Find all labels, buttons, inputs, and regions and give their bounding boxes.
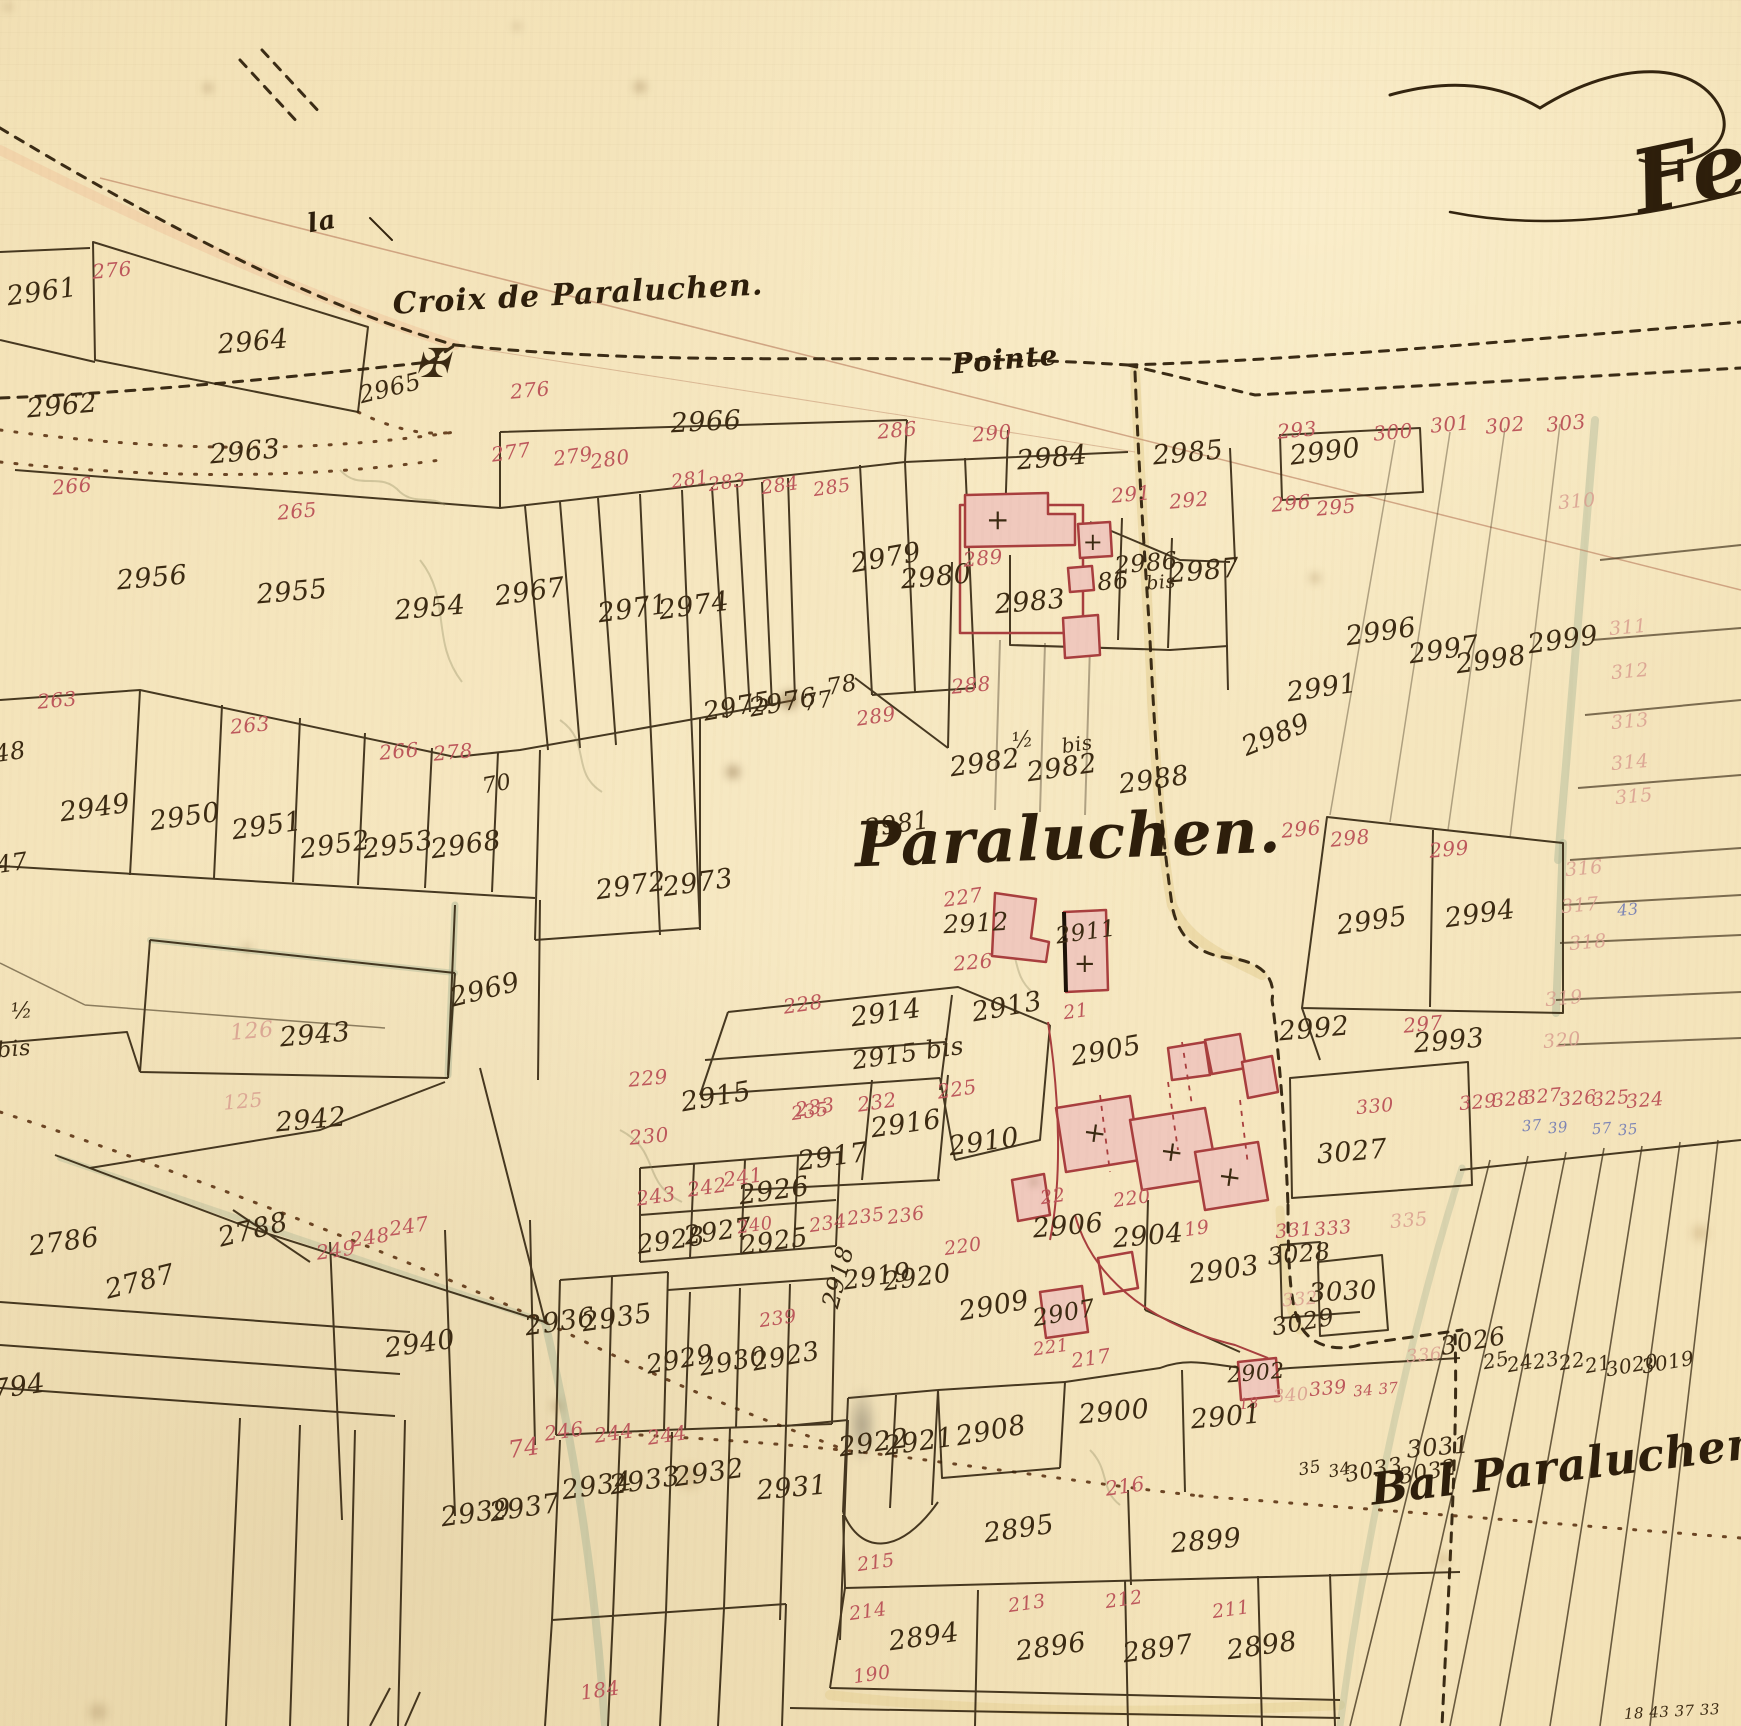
parcel-label-2985: 2985 (1152, 436, 1225, 469)
parcel-label-303: 303 (1545, 411, 1586, 434)
parcel-label-: + (1083, 530, 1104, 554)
parcel-label-315: 315 (1614, 786, 1653, 808)
parcel-label-276: 276 (91, 258, 132, 281)
parcel-label-299: 299 (1428, 837, 1469, 860)
parcel-label-313: 313 (1610, 711, 1649, 733)
parcel-label-317: 317 (1560, 895, 1599, 917)
parcel-label-314: 314 (1610, 752, 1649, 774)
parcel-label-2983: 2983 (994, 585, 1067, 618)
parcel-label-241: 241 (722, 1164, 764, 1189)
parcel-label-35: 35 (1617, 1122, 1638, 1139)
parcel-label-318: 318 (1568, 932, 1607, 954)
parcel-label-2987: 2987 (1168, 554, 1241, 587)
parcel-label-283: 283 (707, 471, 747, 495)
parcel-label-184: 184 (579, 1677, 621, 1702)
parcel-label-230: 230 (628, 1124, 669, 1147)
parcel-label-22: 22 (1039, 1186, 1067, 1208)
parcel-label-22: 22 (1557, 1349, 1587, 1373)
parcel-label-289: 289 (962, 546, 1003, 569)
parcel-label-: ½ (1011, 729, 1036, 754)
parcel-label-2962: 2962 (26, 389, 99, 422)
parcel-label-290: 290 (971, 421, 1012, 444)
parcel-label-239: 239 (758, 1307, 798, 1331)
parcel-label-226: 226 (952, 950, 993, 973)
parcel-label-2963: 2963 (209, 435, 282, 468)
parcel-label-220: 220 (943, 1235, 983, 1259)
parcel-label-: + (986, 506, 1010, 534)
parcel-label-242: 242 (686, 1174, 728, 1199)
parcel-label-244: 244 (646, 1422, 688, 1447)
parcel-label-279: 279 (552, 443, 594, 468)
parcel-label-217: 217 (1070, 1345, 1112, 1370)
parcel-label-37: 37 (1521, 1118, 1542, 1135)
parcel-label-284: 284 (760, 474, 800, 498)
parcel-label-2912: 2912 (943, 909, 1010, 937)
parcel-label-2992: 2992 (1278, 1012, 1351, 1045)
parcel-label-2942: 2942 (275, 1103, 348, 1136)
parcel-label-bis: bis (0, 1038, 32, 1063)
parcel-label-2904: 2904 (1112, 1219, 1185, 1252)
parcel-label-bis: bis (1060, 732, 1093, 756)
parcel-label-125: 125 (222, 1089, 263, 1112)
parcel-label-228: 228 (782, 991, 824, 1016)
parcel-label-2943: 2943 (279, 1018, 352, 1051)
parcel-label-34-37: 34 37 (1353, 1381, 1400, 1400)
parcel-label-2900: 2900 (1078, 1395, 1151, 1428)
parcel-label-229: 229 (627, 1066, 668, 1089)
parcel-label-3027: 3027 (1316, 1135, 1389, 1168)
parcel-label-2956: 2956 (116, 561, 189, 594)
parcel-label-310: 310 (1557, 491, 1596, 513)
parcel-label-216: 216 (1104, 1473, 1146, 1498)
parcel-label-266: 266 (51, 474, 92, 497)
parcel-label-295: 295 (1315, 495, 1356, 518)
parcel-label-221: 221 (1032, 1337, 1070, 1360)
parcel-label-3030: 3030 (1308, 1277, 1377, 1307)
parcel-label-277: 277 (490, 439, 532, 464)
parcel-label-: + (1158, 1136, 1186, 1167)
parcel-label-19: 19 (1183, 1218, 1211, 1240)
parcel-label-302: 302 (1484, 413, 1525, 436)
parcel-label-276: 276 (509, 378, 550, 401)
parcel-label-47: 47 (0, 849, 29, 877)
parcel-label-2906: 2906 (1032, 1209, 1105, 1242)
parcel-label-215: 215 (856, 1551, 896, 1575)
parcel-label-266: 266 (378, 739, 419, 762)
parcel-label-2931: 2931 (756, 1471, 829, 1504)
parcel-label-340: 340 (1272, 1385, 1309, 1406)
place-label-paraluchen: Paraluchen. (854, 800, 1282, 877)
parcel-label-265: 265 (276, 499, 317, 522)
parcel-label-48: 48 (0, 738, 27, 766)
parcel-label-3028: 3028 (1267, 1239, 1332, 1268)
parcel-label-: ½ (10, 1000, 34, 1024)
parcel-label-35: 35 (1297, 1459, 1322, 1480)
place-label-la: la (306, 207, 339, 238)
parcel-label-2993: 2993 (1413, 1024, 1486, 1057)
parcel-label-214: 214 (848, 1600, 888, 1624)
parcel-label-285: 285 (812, 476, 852, 500)
parcel-label-227: 227 (942, 884, 984, 909)
cadastral-map: laCroix de Paraluchen.PointeFe2961276296… (0, 0, 1741, 1726)
parcel-label-24: 24 (1505, 1351, 1535, 1375)
parcel-label-212: 212 (1104, 1588, 1144, 1612)
parcel-label-292: 292 (1168, 488, 1209, 511)
parcel-label-286: 286 (876, 418, 917, 441)
parcel-label-247: 247 (388, 1213, 430, 1238)
parcel-label-234: 234 (808, 1212, 848, 1236)
parcel-label-243: 243 (635, 1183, 677, 1208)
parcel-label-327: 327 (1523, 1086, 1562, 1108)
parcel-label-263: 263 (36, 688, 77, 711)
parcel-label-316: 316 (1564, 858, 1603, 880)
parcel-label-324: 324 (1625, 1090, 1664, 1112)
parcel-label-311: 311 (1608, 617, 1647, 639)
parcel-label-248: 248 (349, 1224, 391, 1249)
parcel-label-335: 335 (1389, 1210, 1428, 1232)
parcel-label-246: 246 (543, 1418, 585, 1443)
parcel-label-57: 57 (1591, 1121, 1612, 1138)
parcel-label-2980: 2980 (900, 560, 973, 593)
parcel-label-235: 235 (846, 1205, 886, 1229)
parcel-label-319: 319 (1544, 988, 1583, 1010)
parcel-label-288: 288 (950, 673, 991, 696)
parcel-label-2966: 2966 (670, 407, 742, 438)
parcel-label-211: 211 (1211, 1598, 1251, 1622)
parcel-label-296: 296 (1270, 491, 1311, 514)
parcel-label-301: 301 (1429, 412, 1470, 435)
parcel-label-289: 289 (855, 703, 897, 728)
parcel-label-244: 244 (593, 1420, 635, 1445)
parcel-label-225: 225 (936, 1076, 978, 1101)
parcel-label-213: 213 (1007, 1592, 1047, 1616)
parcel-label-2984: 2984 (1016, 441, 1089, 474)
parcel-label-2899: 2899 (1170, 1524, 1243, 1557)
parcel-label-320: 320 (1542, 1030, 1581, 1052)
parcel-label-39: 39 (1547, 1120, 1568, 1137)
parcel-label-336: 336 (1405, 1345, 1442, 1366)
parcel-label-126: 126 (229, 1019, 274, 1045)
parcel-label-70: 70 (481, 772, 513, 799)
parcel-label-235: 235 (790, 1100, 830, 1124)
parcel-label-296: 296 (1280, 817, 1321, 840)
parcel-label-2996: 2996 (1379, 632, 1384, 633)
parcel-label-312: 312 (1610, 661, 1649, 683)
parcel-label-2901: 2901 (1190, 1400, 1263, 1433)
parcel-label-2955: 2955 (256, 575, 329, 608)
parcel-label-263: 263 (229, 713, 270, 736)
parcel-label-2902: 2902 (1226, 1361, 1286, 1388)
parcel-label-333: 333 (1313, 1218, 1352, 1240)
parcel-label-220: 220 (1112, 1187, 1152, 1211)
parcel-label-236: 236 (886, 1204, 926, 1228)
parcel-label-: + (1074, 951, 1096, 977)
parcel-label-: + (1081, 1117, 1109, 1148)
parcel-label-298: 298 (1329, 826, 1370, 849)
parcel-label-339: 339 (1308, 1378, 1347, 1400)
parcel-label-43: 43 (1617, 901, 1640, 919)
parcel-label-2990: 2990 (1288, 434, 1361, 469)
parcel-label-190: 190 (852, 1663, 892, 1687)
parcel-label-2954: 2954 (394, 591, 467, 624)
parcel-label-74: 74 (507, 1434, 542, 1462)
parcel-label-280: 280 (589, 446, 631, 471)
parcel-label-281: 281 (670, 468, 710, 492)
parcel-label-330: 330 (1355, 1096, 1394, 1118)
parcel-label-278: 278 (432, 740, 473, 763)
parcel-label-78: 78 (825, 672, 859, 700)
parcel-label-2964: 2964 (217, 325, 290, 358)
place-label-fe: Fe (1624, 117, 1741, 227)
parcel-label-300: 300 (1372, 420, 1413, 443)
parcel-label-: + (1216, 1161, 1244, 1192)
parcel-label-21: 21 (1062, 1001, 1090, 1023)
parcel-label-291: 291 (1110, 482, 1151, 505)
parcel-label-: ✠ (415, 344, 449, 384)
